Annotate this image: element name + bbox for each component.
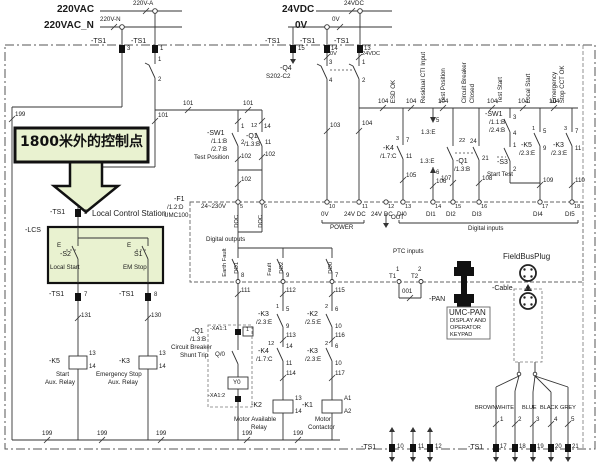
q1r-pin-22: 22 [459, 139, 465, 145]
f1-refx: /1.2:D [167, 205, 184, 211]
pan-line-2: OPERATOR [450, 326, 481, 332]
wiretag-199-3: 199 [156, 431, 166, 437]
ts1-pin-21: 21 [572, 444, 579, 450]
umc-di1: DI1 [426, 212, 436, 218]
umc-pin-16: 16 [481, 205, 487, 211]
umc-0v: 0V [321, 212, 329, 218]
cablewire-3: 3 [536, 417, 539, 423]
k1-name-2: Contactor [308, 425, 335, 431]
f1-name: UMC100 [164, 213, 188, 219]
s1-name: EM Stop [123, 265, 147, 271]
pan-title: UMC-PAN [449, 309, 486, 317]
umc-pin-5: 5 [240, 205, 243, 211]
sig-esd-ok: ESD OK [391, 80, 397, 103]
k5b-pin-5: 5 [543, 129, 546, 135]
umc-24vdc-2: 24V DC [371, 212, 393, 218]
s3-ref: -S3 [497, 159, 508, 166]
wiretag-104-4: 104 [487, 99, 497, 105]
s2-name: Local Start [50, 265, 80, 271]
sw1r-ref: -SW1 [485, 111, 503, 118]
k3m-refx: /2.3:E [256, 320, 272, 326]
umc-di3: DI3 [472, 212, 482, 218]
wiretag-0v: 0V [330, 52, 337, 58]
sw1r-pin-4: 4 [513, 131, 516, 137]
cablewire-5: 5 [571, 417, 574, 423]
sig-residual-cti: Residual CTI Input [421, 52, 427, 103]
k5b-pin-9: 9 [543, 146, 546, 152]
k3-name-2: Aux. Relay [108, 380, 138, 386]
ptc-pin-2: 2 [418, 267, 421, 273]
wiretag-101-b: 101 [243, 101, 253, 107]
wiretag-220v-a: 220V-A [133, 1, 153, 7]
k2-pin-13: 13 [295, 396, 302, 402]
ts1-pin-3: 3 [127, 46, 130, 52]
k3-pin-14: 14 [159, 364, 166, 370]
k3-ref: -K3 [119, 358, 130, 365]
umc-pin-9: 9 [286, 273, 289, 279]
wiretag-109: 109 [543, 178, 553, 184]
ts1-pin-7: 7 [84, 292, 87, 298]
k3r-refx: /2.3:E [305, 357, 321, 363]
sw1l-ref: -SW1 [207, 130, 225, 137]
ts1-label-7: -TS1 [49, 291, 64, 298]
k1-ref: -K1 [302, 402, 313, 409]
k5-pin-14: 14 [89, 364, 96, 370]
sw1r-ref2: /2.4:B [489, 128, 505, 134]
wiretag-114: 114 [286, 371, 296, 377]
umc-di2: DI2 [446, 212, 456, 218]
sig-test-start: Test Start [498, 77, 504, 103]
k1-pin-a1: A1 [344, 396, 351, 402]
rail-220vac: 220VAC [57, 5, 94, 15]
cablewire-1: 1 [500, 417, 503, 423]
sw1r-pin-3: 3 [513, 115, 516, 121]
umc-earth-fault: Earth Fault [223, 248, 229, 276]
k4m-ref: -K4 [258, 348, 269, 355]
k3m-pin-5: 5 [286, 307, 289, 313]
wiretag-102-b: 102 [265, 152, 275, 158]
q4-pin-4: 4 [329, 78, 332, 84]
rj45-connector-icon [454, 261, 474, 276]
sig-local-start: Local Start [526, 74, 532, 104]
wiretag-104-2: 104 [406, 99, 416, 105]
k1-pin-a2: A2 [344, 409, 351, 415]
umc-digital-inputs: Digital inputs [468, 226, 503, 232]
k2-name-1: Motor Available [234, 417, 276, 423]
q1l-pin-12: 12 [251, 124, 257, 130]
s1-ref: S1 [134, 251, 143, 258]
umc-pin-18: 18 [574, 205, 580, 211]
res-ref-2: 1.3:E [420, 159, 434, 165]
q1s-xa1-1-pin: 1 [246, 328, 249, 334]
wiretag-199-1: 199 [42, 431, 52, 437]
wire-color-blue: BLUE [522, 406, 537, 412]
res-pin-5: 5 [436, 118, 439, 124]
wiretag-199-5: 199 [293, 431, 303, 437]
wiretag-105: 105 [406, 173, 416, 179]
k2r-pin-6: 6 [335, 307, 338, 313]
k3r-ref: -K3 [307, 348, 318, 355]
umc-pin-17: 17 [542, 205, 548, 211]
k3m-pin-9: 9 [286, 324, 289, 330]
k2-ref: -K2 [251, 402, 262, 409]
k3b-ref: -K3 [553, 142, 564, 149]
k3b-pin-7: 7 [575, 129, 578, 135]
umc-digital-outputs: Digital outputs [206, 237, 245, 243]
umc-power: POWER [330, 225, 353, 231]
q1s-ref: -Q1 [192, 328, 204, 335]
q1s-name-1: Circuit Breaker [171, 345, 212, 351]
q4-pin-1: 1 [362, 60, 365, 66]
umc-pin-8: 8 [241, 273, 244, 279]
sig-test-position: Test Position [441, 68, 447, 103]
umc-pin-11: 11 [362, 205, 368, 211]
q1s-q0: Q/0 [215, 352, 225, 358]
q1l-pin-14: 14 [264, 124, 271, 130]
k3m-flag: 1 [276, 305, 279, 311]
k2-pin-14: 14 [295, 409, 302, 415]
pan-line-1: DISPLAY AND [450, 319, 486, 325]
k1-name-1: Motor [315, 417, 331, 423]
sw1l-ref2: /2.7:B [211, 147, 227, 153]
k4b-pin-7: 7 [406, 138, 409, 144]
k5b-refx: /2.3:E [519, 151, 535, 157]
ts1-pin-15: 15 [298, 46, 305, 52]
k5b-ref: -K5 [521, 142, 532, 149]
k3r-flag: 2 [325, 342, 328, 348]
umc-pin-10: 10 [329, 205, 335, 211]
ts1-pin-12: 12 [435, 444, 442, 450]
k3-name-1: Emergency Stop [96, 372, 142, 378]
wiretag-102-a: 102 [241, 154, 251, 160]
res-pin-6: 6 [436, 170, 439, 176]
pan-line-3: KEYPAD [450, 333, 472, 339]
k4b-flag: 3 [396, 137, 399, 143]
umc-do0: DO0 [329, 262, 335, 274]
callout-text: 1800米外的控制点 [15, 135, 148, 149]
bus-nodes [120, 9, 363, 30]
ptc-t2: T2 [411, 274, 418, 280]
umc-di0: DI0 [397, 212, 407, 218]
mainbrk-pin-2: 2 [158, 77, 161, 83]
res-ref-1: 1.3:E [421, 130, 435, 136]
ts1-label-13: -TS1 [334, 38, 349, 45]
wiretag-131: 131 [81, 313, 91, 319]
ts1-pin-18: 18 [519, 444, 526, 450]
sw1r-pin-2: 2 [513, 167, 516, 173]
sw1r-pin-1: 1 [513, 143, 516, 149]
q1r-pin-21: 21 [482, 156, 489, 162]
pan-ref: -PAN [429, 296, 445, 303]
ts1-label-bottom-1: -TS1 [361, 444, 376, 451]
umc-di5: DI5 [565, 212, 575, 218]
ts1-label-3: -TS1 [91, 38, 106, 45]
k5-pin-13: 13 [89, 351, 96, 357]
umc-pin-13: 13 [405, 205, 411, 211]
k3r-pin-10: 10 [335, 361, 342, 367]
k5-name-1: Start [56, 372, 69, 378]
k2-name-2: Relay [251, 425, 267, 431]
ptc-t1: T1 [389, 274, 396, 280]
q1l-refx: /1.3:B [244, 142, 260, 148]
k2r-refx: /2.5:E [305, 320, 321, 326]
rail-0v: 0V [295, 21, 307, 31]
ts1-label-8: -TS1 [119, 291, 134, 298]
k3m-ref: -K3 [258, 311, 269, 318]
ts1-pin-20: 20 [555, 444, 562, 450]
k3b-flag: 3 [564, 127, 567, 133]
k3b-pin-11: 11 [575, 146, 581, 152]
k2r-ref: -K2 [307, 311, 318, 318]
k4m-refx: /1.7:C [256, 357, 273, 363]
sig-stop-cct-ok: Stop CCT OK [560, 65, 566, 103]
ts1-label-bottom-2: -TS1 [468, 444, 483, 451]
ts1-pin-8: 8 [154, 292, 157, 298]
fieldbus-group [514, 265, 542, 362]
wiretag-199-2: 199 [97, 431, 107, 437]
wiretag-103: 103 [330, 123, 340, 129]
q1s-xa1-2: -XA1:2 [208, 394, 225, 400]
ts1-label-5: -TS1 [50, 209, 65, 216]
wiretag-220v-n: 220V-N [100, 17, 121, 23]
wiretag-0v-top: 0V [332, 17, 340, 23]
umc-di4: DI4 [533, 212, 543, 218]
wiretag-104-v: 104 [362, 121, 372, 127]
k2r-pin-10: 10 [335, 324, 342, 330]
wiretag-110: 110 [575, 178, 585, 184]
wiretag-111: 111 [241, 288, 250, 294]
cablewire-4: 4 [554, 417, 557, 423]
wiretag-199-left: 199 [15, 112, 25, 118]
ts1-pin-1: 1 [160, 46, 163, 52]
k5b-flag: 1 [532, 127, 535, 133]
umc-do2: DO2 [280, 262, 286, 274]
schematic-page: 220VAC220VAC_N220V-A220V-N-TS13-TS111210… [0, 0, 600, 465]
k3r-pin-6: 6 [335, 344, 338, 350]
lcs-title: Local Control Station [92, 210, 166, 218]
q1s-y0: Y0 [233, 380, 241, 386]
lcs-ref: -LCS [25, 227, 41, 234]
f1-ref: -F1 [174, 196, 185, 203]
cable-plug-icon [520, 293, 536, 309]
wiretag-104-1: 104 [378, 99, 388, 105]
rail-24vdc: 24VDC [282, 5, 314, 15]
wiretag-107: 107 [441, 176, 451, 182]
ts1-pin-10: 10 [397, 444, 404, 450]
umc-pin-15: 15 [455, 205, 461, 211]
plug-mating-arrow [524, 284, 532, 291]
wiretag-101-lcs: 101 [158, 113, 168, 119]
s2-actuator: E [57, 243, 61, 249]
sw1l-pin-1: 1 [241, 124, 244, 130]
umc-pin-6: 6 [264, 205, 267, 211]
k4b-refx: /1.7:C [380, 154, 397, 160]
q1l-ref: -Q1 [246, 133, 258, 140]
sw1r-ref1: /1.1:B [489, 120, 505, 126]
k2r-flag: 2 [325, 305, 328, 311]
q1s-xa1-1: -XA1:1 [210, 327, 227, 333]
q4-ref: -Q4 [280, 65, 292, 72]
fieldbus-plug-icon [520, 265, 536, 281]
q1r-pin-24: 24 [470, 139, 477, 145]
wiretag-24vdc-top: 24VDC [344, 1, 364, 7]
wire-color-grey: GREY [560, 406, 576, 412]
k4m-flag: 12 [268, 342, 274, 348]
k3b-refx: /2.3:E [551, 151, 567, 157]
mainbrk-pin-1: 1 [158, 57, 161, 63]
sw1l-ref1: /1.1:B [211, 139, 227, 145]
wiretag-001: 001 [402, 289, 412, 295]
umc-pin-14: 14 [435, 205, 441, 211]
wiretag-113: 113 [286, 333, 296, 339]
q4-type: S202-C2 [266, 74, 290, 80]
sig-emergency: Emergency [552, 72, 558, 103]
wiretag-24vdc: 24VDC [362, 52, 380, 58]
q1s-refx: /1.3:B [190, 337, 206, 343]
k5-ref: -K5 [49, 358, 60, 365]
callout-arrow [54, 162, 118, 212]
cable-ref: -Cable [492, 285, 513, 292]
q1r-refx: /1.3:B [454, 167, 470, 173]
ts1-label-14: -TS1 [300, 38, 315, 45]
sw1l-name: Test Position [194, 155, 229, 161]
s3-name: Start Test [487, 172, 513, 178]
wiretag-102-c: 102 [241, 177, 251, 183]
umc-24vdc-1: 24V DC [344, 212, 366, 218]
wiretag-130: 130 [151, 313, 161, 319]
k4m-pin-14: 14 [286, 344, 293, 350]
wiretag-101-a: 101 [183, 101, 193, 107]
ts1-label-15: -TS1 [265, 38, 280, 45]
umc-doc-2: DOC [259, 215, 265, 228]
sig-circuit-breaker: Circuit Breaker [462, 62, 468, 103]
k4m-pin-11: 11 [286, 361, 292, 367]
q4-pin-3: 3 [329, 60, 332, 66]
wire-color-white: WHITE [496, 406, 514, 412]
ptc-pin-1: 1 [396, 267, 399, 273]
wiretag-199-4: 199 [242, 431, 252, 437]
k3-pin-13: 13 [159, 351, 166, 357]
fieldbusplug-label: FieldBusPlug [503, 253, 550, 261]
wiretag-117: 117 [335, 371, 345, 377]
rail-220vac-n: 220VAC_N [44, 21, 94, 31]
ts1-pin-11: 11 [418, 444, 424, 450]
k4b-pin-11: 11 [406, 154, 412, 160]
umc-ptc: PTC inputs [393, 249, 424, 255]
wiretag-115: 115 [335, 288, 345, 294]
wiretag-112: 112 [286, 288, 296, 294]
ts1-label-1: -TS1 [131, 38, 146, 45]
umc-pin-7: 7 [335, 273, 338, 279]
k5-name-2: Aux. Relay [45, 380, 75, 386]
ts1-pin-19: 19 [537, 444, 544, 450]
q1s-name-2: Shunt Trip [180, 353, 208, 359]
umc-fault: Fault [268, 263, 274, 276]
q1r-ref: -Q1 [456, 158, 468, 165]
s1-actuator: E [127, 243, 131, 249]
umc-pin-12: 12 [388, 205, 394, 211]
wire-color-brown: BROWN [475, 406, 496, 412]
sig-closed: Closed [470, 84, 476, 103]
s2-ref: -S2 [60, 251, 71, 258]
ts1-pin-5: 5 [84, 210, 87, 216]
umc-doc-1: DOC [235, 215, 241, 228]
k4b-ref: -K4 [383, 145, 394, 152]
q4-pin-2: 2 [362, 78, 365, 84]
ts1-pin-17: 17 [500, 444, 507, 450]
q1l-pin-11: 11 [265, 140, 271, 146]
pan-cable [461, 276, 467, 294]
cablewire-2: 2 [518, 417, 521, 423]
wire-color-black: BLACK [540, 406, 558, 412]
umc-do1: DO1 [235, 262, 241, 274]
umc-voltage: 24~230V [201, 204, 226, 210]
wiretag-116: 116 [335, 333, 345, 339]
